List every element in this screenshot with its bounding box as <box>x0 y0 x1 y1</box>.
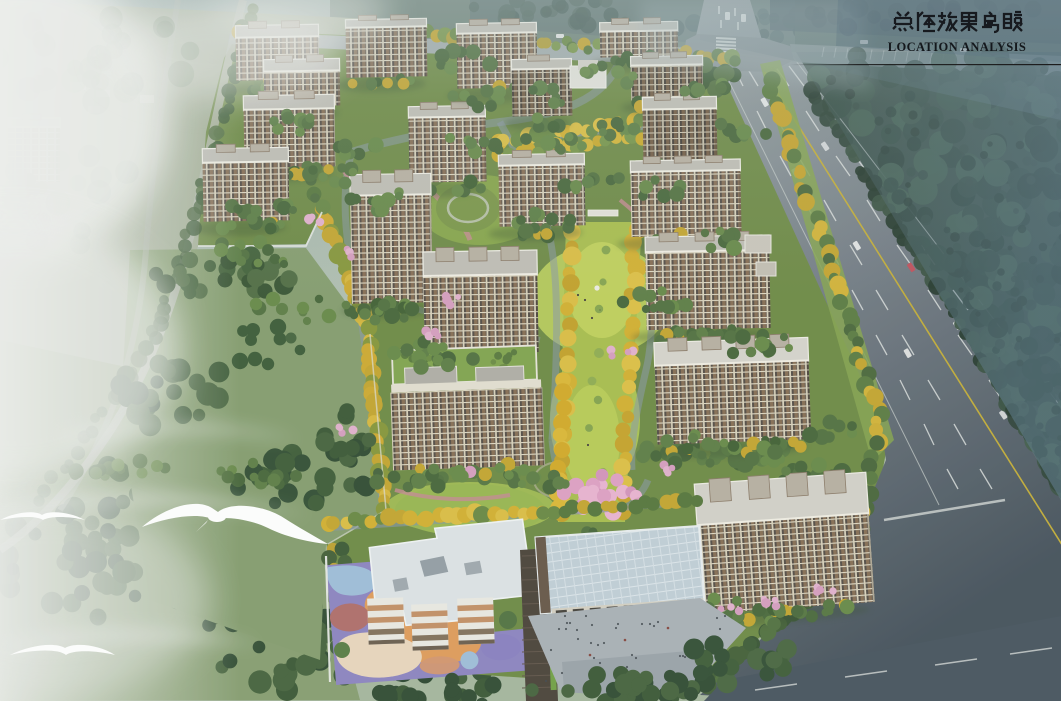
svg-text:LOCATION ANALYSIS: LOCATION ANALYSIS <box>888 40 1026 54</box>
